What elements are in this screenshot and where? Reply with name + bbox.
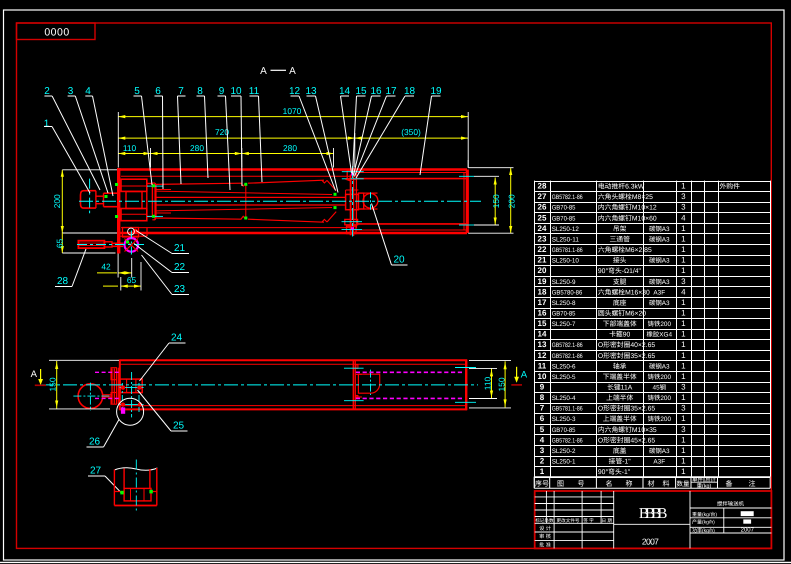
svg-text:SL250-6: SL250-6 [552, 363, 576, 370]
svg-text:7: 7 [178, 86, 184, 97]
svg-text:六角头螺栓M8×25: 六角头螺栓M8×25 [598, 193, 653, 201]
svg-text:三通管: 三通管 [610, 235, 631, 243]
svg-text:1: 1 [681, 182, 686, 191]
svg-text:内六角螺钉M10×35: 内六角螺钉M10×35 [598, 426, 657, 434]
svg-text:GB5782.1-86: GB5782.1-86 [552, 437, 583, 444]
svg-text:1: 1 [681, 351, 686, 360]
svg-text:O形密封圈40×2.65: O形密封圈40×2.65 [598, 341, 655, 349]
svg-text:1: 1 [681, 308, 686, 317]
svg-text:碳钢A3: 碳钢A3 [649, 299, 670, 307]
svg-text:1: 1 [681, 330, 686, 339]
svg-text:碳钢A3: 碳钢A3 [649, 447, 670, 455]
svg-text:卡箍90: 卡箍90 [609, 331, 630, 339]
svg-text:150: 150 [496, 377, 506, 391]
svg-text:1: 1 [681, 298, 686, 307]
svg-text:42: 42 [101, 262, 111, 272]
svg-text:4: 4 [681, 213, 686, 222]
svg-text:20: 20 [538, 266, 547, 275]
svg-text:注: 注 [749, 480, 756, 488]
svg-text:65: 65 [127, 275, 137, 285]
svg-text:0000: 0000 [44, 27, 69, 39]
svg-text:上端半体: 上端半体 [606, 394, 633, 402]
svg-text:3: 3 [681, 425, 686, 434]
svg-text:O形密封圈35×2.65: O形密封圈35×2.65 [598, 405, 655, 413]
svg-text:1: 1 [681, 256, 686, 265]
svg-text:1: 1 [681, 414, 686, 423]
svg-text:橡胶XG4: 橡胶XG4 [647, 331, 673, 339]
svg-text:18: 18 [538, 287, 547, 296]
svg-text:19: 19 [430, 86, 442, 97]
svg-text:14: 14 [339, 86, 351, 97]
svg-text:下端盖半体: 下端盖半体 [603, 373, 637, 381]
svg-text:序号: 序号 [535, 480, 549, 488]
svg-text:110: 110 [123, 143, 137, 153]
svg-text:7: 7 [540, 404, 545, 413]
svg-text:12: 12 [538, 351, 547, 360]
svg-text:11: 11 [249, 86, 260, 97]
svg-text:6: 6 [540, 414, 545, 423]
svg-text:GB70-85: GB70-85 [552, 310, 576, 317]
svg-text:SL250-1: SL250-1 [552, 459, 576, 466]
svg-text:BBBB: BBBB [639, 506, 668, 522]
svg-text:重(kg): 重(kg) [697, 483, 712, 490]
svg-text:1: 1 [681, 446, 686, 455]
svg-text:数量: 数量 [677, 480, 691, 488]
svg-text:GB5782.1-86: GB5782.1-86 [552, 353, 583, 360]
svg-text:23: 23 [538, 234, 547, 243]
svg-text:GB5780-86: GB5780-86 [552, 289, 583, 296]
svg-text:长键11A: 长键11A [607, 384, 633, 392]
svg-text:A3F: A3F [653, 459, 665, 466]
svg-text:1: 1 [681, 393, 686, 402]
svg-text:材: 材 [648, 480, 655, 488]
svg-text:SL250-2: SL250-2 [552, 448, 576, 455]
svg-text:1: 1 [681, 319, 686, 328]
svg-text:碳钢A3: 碳钢A3 [649, 225, 670, 233]
svg-text:3: 3 [681, 203, 686, 212]
svg-text:1: 1 [681, 467, 686, 476]
svg-text:SL250-8: SL250-8 [552, 300, 576, 307]
svg-text:总计: 总计 [705, 477, 716, 484]
svg-text:更改文件号: 更改文件号 [557, 518, 580, 523]
svg-text:280: 280 [190, 143, 204, 153]
svg-text:27: 27 [90, 466, 102, 477]
svg-text:SL250-4: SL250-4 [552, 395, 576, 402]
svg-text:2007: 2007 [642, 536, 659, 546]
svg-text:5: 5 [540, 425, 545, 434]
svg-text:12: 12 [289, 86, 301, 97]
svg-text:铸铁200: 铸铁200 [648, 394, 672, 402]
svg-text:3: 3 [681, 192, 686, 201]
svg-text:13: 13 [538, 340, 547, 349]
svg-text:下部端盖体: 下部端盖体 [603, 320, 637, 328]
svg-text:SL250-11: SL250-11 [552, 236, 580, 243]
svg-text:审 核: 审 核 [539, 533, 551, 540]
svg-text:28: 28 [538, 182, 547, 191]
svg-text:10: 10 [538, 372, 547, 381]
svg-text:吊架: 吊架 [613, 225, 627, 233]
svg-text:搅拌输送机: 搅拌输送机 [717, 501, 745, 508]
svg-text:22: 22 [538, 245, 547, 254]
svg-text:GB5781.1-86: GB5781.1-86 [552, 406, 583, 413]
svg-text:批 准: 批 准 [539, 541, 551, 548]
svg-text:18: 18 [404, 86, 416, 97]
svg-text:功率(kg/h): 功率(kg/h) [692, 527, 715, 534]
svg-text:4: 4 [85, 86, 91, 97]
svg-text:90°弯头-Ω1/4": 90°弯头-Ω1/4" [598, 267, 642, 275]
svg-text:料: 料 [663, 480, 670, 488]
svg-text:单件: 单件 [692, 477, 703, 484]
svg-text:26: 26 [89, 437, 101, 448]
svg-text:90°弯头-1": 90°弯头-1" [598, 468, 631, 476]
svg-text:19: 19 [538, 277, 547, 286]
svg-text:3: 3 [681, 383, 686, 392]
svg-text:SL250-7: SL250-7 [552, 321, 576, 328]
svg-text:GB70-85: GB70-85 [552, 205, 576, 212]
svg-text:备: 备 [726, 480, 733, 488]
svg-text:SL250-9: SL250-9 [552, 279, 576, 286]
svg-text:1: 1 [44, 119, 50, 130]
svg-text:10: 10 [230, 86, 242, 97]
svg-text:日 期: 日 期 [601, 518, 612, 523]
svg-text:1: 1 [681, 234, 686, 243]
svg-text:1: 1 [681, 435, 686, 444]
svg-text:六角螺栓M16×30: 六角螺栓M16×30 [598, 288, 650, 296]
svg-text:图: 图 [557, 480, 564, 488]
svg-text:280: 280 [283, 143, 297, 153]
svg-text:15: 15 [355, 86, 367, 97]
svg-text:150: 150 [47, 377, 57, 391]
svg-text:3: 3 [540, 446, 545, 455]
svg-text:22: 22 [174, 262, 186, 273]
svg-text:3: 3 [681, 277, 686, 286]
svg-text:上端盖半体: 上端盖半体 [603, 415, 637, 423]
svg-text:铸铁200: 铸铁200 [648, 415, 672, 423]
svg-text:21: 21 [538, 256, 547, 265]
svg-text:称: 称 [626, 480, 633, 488]
svg-text:设 计: 设 计 [539, 525, 551, 532]
svg-text:碳钢A3: 碳钢A3 [649, 362, 670, 370]
svg-text:28: 28 [57, 276, 69, 287]
svg-text:内六角螺钉M10×12: 内六角螺钉M10×12 [598, 204, 657, 212]
svg-text:A: A [521, 370, 528, 381]
svg-text:标记处数: 标记处数 [535, 518, 554, 523]
svg-text:6: 6 [155, 86, 161, 97]
svg-text:GB5781.1-86: GB5781.1-86 [552, 247, 583, 254]
svg-text:电动推杆6.3kW: 电动推杆6.3kW [598, 183, 645, 191]
svg-text:支腿: 支腿 [613, 278, 627, 286]
svg-text:SL250-10: SL250-10 [552, 258, 580, 265]
svg-text:号: 号 [578, 480, 585, 488]
svg-text:17: 17 [385, 86, 397, 97]
svg-text:1: 1 [681, 340, 686, 349]
svg-text:接管-1": 接管-1" [609, 458, 632, 466]
svg-text:碳钢A3: 碳钢A3 [649, 257, 670, 265]
svg-text:25: 25 [538, 213, 547, 222]
svg-text:底座: 底座 [613, 299, 627, 307]
svg-text:27: 27 [538, 192, 547, 201]
svg-text:16: 16 [538, 308, 547, 317]
svg-text:20: 20 [393, 255, 405, 266]
svg-text:SL250-5: SL250-5 [552, 374, 576, 381]
svg-text:GB70-85: GB70-85 [552, 427, 576, 434]
svg-text:16: 16 [370, 86, 382, 97]
svg-text:24: 24 [171, 333, 183, 344]
svg-text:4: 4 [681, 287, 686, 296]
svg-text:1: 1 [681, 457, 686, 466]
svg-text:GB70-85: GB70-85 [552, 215, 576, 222]
svg-text:1: 1 [681, 361, 686, 370]
svg-text:2: 2 [540, 457, 545, 466]
svg-text:15: 15 [538, 319, 547, 328]
svg-text:1: 1 [540, 467, 545, 476]
svg-text:1: 1 [681, 372, 686, 381]
svg-text:SL250-12: SL250-12 [552, 226, 580, 233]
svg-text:轴承: 轴承 [613, 362, 627, 370]
svg-text:碳钢A3: 碳钢A3 [649, 278, 670, 286]
svg-text:(350): (350) [401, 127, 421, 137]
svg-text:14: 14 [538, 330, 547, 339]
svg-text:名: 名 [606, 480, 613, 488]
svg-text:A: A [260, 66, 267, 77]
svg-text:圆头螺钉M6×20: 圆头螺钉M6×20 [598, 309, 646, 317]
svg-text:26: 26 [538, 203, 547, 212]
svg-text:9: 9 [219, 86, 225, 97]
svg-text:六角螺栓M6×2.85: 六角螺栓M6×2.85 [598, 246, 652, 254]
svg-text:O形密封圈35×2.65: O形密封圈35×2.65 [598, 352, 655, 360]
svg-text:产量(kg/h): 产量(kg/h) [692, 518, 715, 525]
svg-text:重量(kg/台): 重量(kg/台) [692, 511, 717, 518]
svg-text:110: 110 [482, 376, 492, 390]
svg-text:1: 1 [681, 266, 686, 275]
svg-text:GB5782.1-86: GB5782.1-86 [552, 342, 583, 349]
svg-text:碳钢A3: 碳钢A3 [649, 235, 670, 243]
svg-text:5: 5 [134, 86, 140, 97]
svg-text:铸铁200: 铸铁200 [648, 373, 672, 381]
svg-text:O形密封圈45×2.65: O形密封圈45×2.65 [598, 436, 655, 444]
svg-text:21: 21 [174, 243, 186, 254]
svg-text:200: 200 [52, 194, 62, 208]
svg-text:24: 24 [538, 224, 547, 233]
svg-text:签 字: 签 字 [583, 518, 594, 523]
svg-text:2007: 2007 [741, 526, 755, 533]
svg-text:4: 4 [540, 435, 545, 444]
svg-text:3: 3 [681, 404, 686, 413]
svg-text:A: A [31, 369, 38, 380]
svg-text:铸铁200: 铸铁200 [648, 320, 672, 328]
svg-text:17: 17 [538, 298, 547, 307]
svg-text:A: A [289, 66, 296, 77]
svg-text:A3F: A3F [653, 289, 665, 296]
svg-text:23: 23 [174, 284, 186, 295]
svg-text:45钢: 45钢 [653, 384, 667, 392]
svg-text:外购件: 外购件 [720, 183, 741, 191]
svg-text:1070: 1070 [283, 106, 302, 116]
svg-text:3: 3 [68, 86, 74, 97]
svg-text:GB5782.1-86: GB5782.1-86 [552, 194, 583, 201]
svg-text:9: 9 [540, 383, 545, 392]
svg-text:11: 11 [538, 361, 547, 370]
svg-text:8: 8 [540, 393, 545, 402]
svg-text:8: 8 [197, 86, 203, 97]
svg-text:150: 150 [491, 194, 501, 208]
svg-text:1: 1 [681, 245, 686, 254]
svg-text:SL250-3: SL250-3 [552, 416, 576, 423]
svg-text:1: 1 [681, 224, 686, 233]
svg-text:25: 25 [173, 421, 185, 432]
svg-text:13: 13 [305, 86, 317, 97]
svg-text:底盖: 底盖 [613, 447, 627, 455]
svg-text:内六角螺钉M10×60: 内六角螺钉M10×60 [598, 214, 657, 222]
svg-text:接头: 接头 [613, 257, 627, 265]
svg-text:200: 200 [506, 194, 516, 208]
svg-text:65: 65 [54, 239, 64, 249]
svg-text:2: 2 [44, 86, 50, 97]
